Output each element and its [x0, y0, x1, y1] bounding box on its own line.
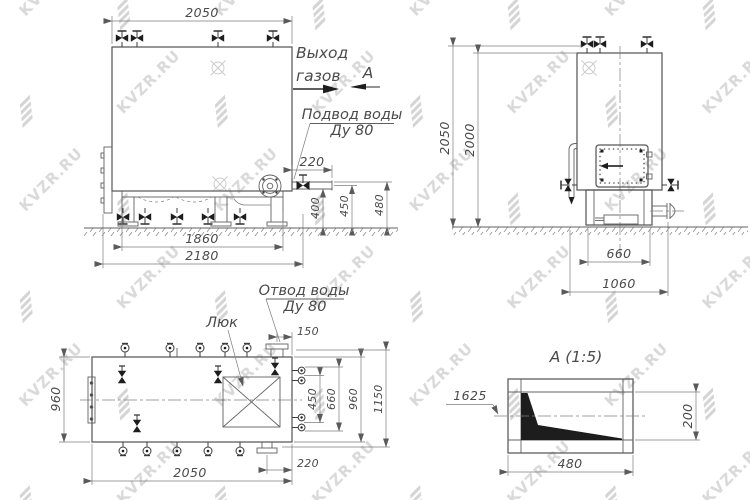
dim-stub-outer: 660 — [325, 388, 338, 410]
dim-h480: 480 — [373, 194, 386, 216]
dim-depth-left: 960 — [48, 386, 63, 411]
dim-length-bottom: 2050 — [173, 465, 206, 480]
dim-h400: 400 — [309, 197, 322, 219]
label-gas-outlet-2: газов — [296, 67, 341, 85]
dim-outlet-offset: 150 — [297, 325, 319, 338]
dim-height-total: 2050 — [437, 121, 452, 154]
dim-overall-depth: 1150 — [372, 384, 385, 413]
label-water-inlet-1: Подвод воды — [302, 107, 403, 123]
label-manhole: Люк — [205, 315, 238, 331]
label-water-inlet-2: Ду 80 — [330, 123, 374, 139]
dim-height-body: 2000 — [462, 123, 477, 156]
dim-detail-height: 200 — [680, 403, 695, 428]
boiler-technical-drawing: KVZR.RU — [0, 0, 750, 500]
dim-pipe-offset: 220 — [299, 154, 324, 169]
detail-title: А (1:5) — [549, 348, 603, 366]
label-water-outlet-2: Ду 80 — [283, 299, 327, 315]
dim-detail-width: 480 — [557, 456, 582, 471]
label-gas-outlet-1: Выход — [296, 44, 348, 62]
drawing-canvas: KVZR.RU — [0, 0, 750, 500]
dim-h450: 450 — [338, 195, 351, 217]
dim-base-width: 1060 — [602, 276, 635, 291]
dim-width-right: 960 — [347, 388, 360, 410]
dim-front-width: 2050 — [185, 5, 218, 20]
dim-stub-span: 450 — [306, 388, 319, 410]
label-section-a: А — [362, 64, 374, 82]
dim-flange-offset: 220 — [297, 457, 319, 470]
label-water-outlet-1: Отвод воды — [259, 283, 350, 299]
dim-support-width: 660 — [606, 246, 631, 261]
dim-elevation: 1625 — [453, 388, 486, 403]
dim-overall-width: 2180 — [185, 248, 218, 263]
